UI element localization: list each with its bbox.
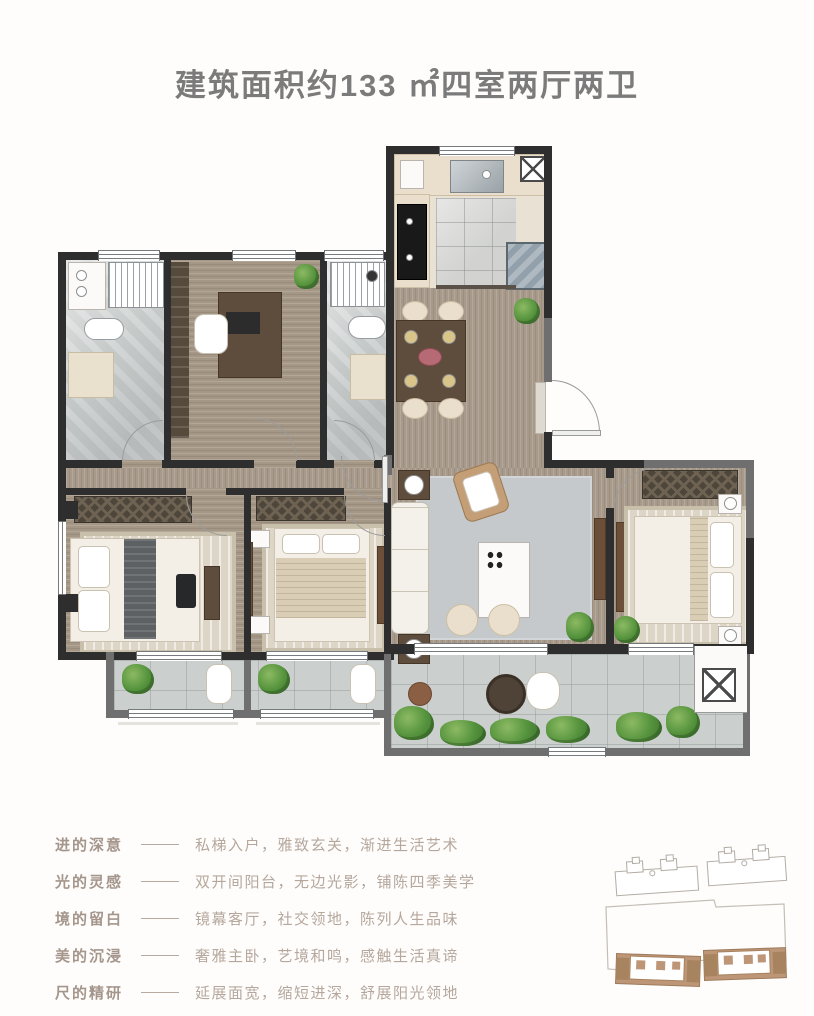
bath2-drain bbox=[366, 270, 378, 282]
window bbox=[136, 651, 222, 661]
plant bbox=[614, 616, 640, 643]
balcony-plant bbox=[122, 664, 154, 694]
bath2-toilet bbox=[348, 316, 386, 339]
sink-faucet bbox=[482, 170, 491, 179]
door-gap bbox=[254, 460, 296, 468]
bedroom1-pillow bbox=[78, 590, 110, 632]
window-sill bbox=[118, 722, 238, 725]
entry-shoe-cabinet bbox=[535, 382, 546, 434]
feature-label: 美的沉浸 bbox=[55, 945, 133, 966]
bedroom1-throw bbox=[176, 574, 196, 608]
kitchen-window bbox=[439, 146, 515, 156]
window bbox=[324, 250, 384, 261]
bedroom1-pillow bbox=[78, 546, 110, 588]
terrace-pot bbox=[408, 682, 432, 706]
living-media-panel bbox=[594, 518, 606, 600]
feature-row: 尺的精研 延展面宽，缩短进深，舒展阳光领地 bbox=[55, 974, 565, 1011]
bedroom1-window bbox=[58, 521, 66, 595]
study-monitor bbox=[226, 312, 260, 334]
feature-row: 境的留白 镜幕客厅，社交领地，陈列人生品味 bbox=[55, 900, 565, 937]
balcony-plant bbox=[258, 664, 290, 694]
terrace-table bbox=[486, 674, 526, 714]
door-gap bbox=[122, 460, 162, 468]
dash-divider bbox=[141, 844, 179, 845]
site-building-highlighted bbox=[703, 948, 786, 981]
feature-row: 进的深意 私梯入户，雅致玄关，渐进生活艺术 bbox=[55, 826, 565, 863]
dining-plate bbox=[404, 330, 418, 344]
window bbox=[232, 250, 296, 261]
refrigerator bbox=[506, 242, 548, 290]
kitchen-threshold bbox=[436, 285, 516, 289]
terrace-plant bbox=[490, 718, 540, 744]
terrace-plant bbox=[440, 720, 486, 746]
feature-label: 尺的精研 bbox=[55, 982, 133, 1003]
master-pillow bbox=[710, 572, 734, 618]
nightstand-lamp bbox=[724, 497, 737, 510]
bedroom2-pillow bbox=[282, 534, 320, 554]
entry-door-arc bbox=[552, 380, 600, 433]
plant bbox=[294, 264, 319, 289]
dining-plate bbox=[404, 374, 418, 388]
coffee-table-decor bbox=[486, 550, 504, 570]
study-chair bbox=[194, 314, 228, 354]
site-plan-svg bbox=[598, 843, 794, 1005]
bath2-shower bbox=[330, 262, 385, 307]
terrace-wall bbox=[384, 654, 391, 756]
terrace-chair bbox=[526, 672, 560, 710]
wall-segment bbox=[251, 488, 344, 495]
feature-text: 奢雅主卧，艺境和鸣，感触生活真谛 bbox=[195, 945, 459, 966]
dining-chair bbox=[438, 398, 464, 419]
window bbox=[98, 250, 160, 261]
wall-segment bbox=[746, 538, 754, 652]
feature-row: 美的沉浸 奢雅主卧，艺境和鸣，感触生活真谛 bbox=[55, 937, 565, 974]
bath1-vanity bbox=[68, 352, 114, 398]
wall-segment bbox=[386, 146, 394, 260]
site-building-highlighted bbox=[616, 954, 701, 987]
balcony-seat bbox=[350, 664, 376, 704]
terrace-plant bbox=[616, 712, 662, 742]
stove-burner bbox=[406, 254, 413, 261]
bedroom2-pillow bbox=[322, 534, 360, 554]
stove-burner bbox=[406, 218, 413, 225]
sofa bbox=[391, 502, 429, 634]
page: { "title": "建筑面积约133 ㎡四室两厅两卫", "features… bbox=[0, 0, 814, 1016]
bath1-faucet bbox=[76, 286, 87, 297]
dining-chair bbox=[438, 301, 464, 322]
wall-segment bbox=[244, 488, 251, 652]
wall-segment-light bbox=[644, 460, 754, 468]
bedroom2-wardrobe bbox=[256, 496, 346, 521]
feature-text: 双开间阳台，无边光影，铺陈四季美学 bbox=[195, 871, 476, 892]
wall-segment bbox=[606, 468, 614, 478]
site-building-outline bbox=[614, 853, 698, 896]
bath1-shower bbox=[108, 262, 164, 308]
balcony-floor bbox=[114, 660, 388, 710]
plant bbox=[566, 612, 594, 642]
dining-centerpiece bbox=[418, 348, 442, 366]
bedroom2-nightstand bbox=[250, 616, 270, 634]
kitchen-flue-shaft bbox=[520, 156, 546, 182]
window bbox=[266, 651, 368, 661]
bedroom1-wardrobe bbox=[74, 496, 192, 523]
study-closet bbox=[171, 262, 189, 438]
ac-platform bbox=[702, 668, 736, 702]
bedroom2-nightstand bbox=[250, 530, 270, 548]
bath1-faucet bbox=[76, 270, 87, 281]
dash-divider bbox=[141, 992, 179, 993]
wall-segment bbox=[66, 488, 186, 495]
dining-plate bbox=[442, 330, 456, 344]
dining-chair bbox=[402, 398, 428, 419]
bedroom1-bench bbox=[204, 566, 220, 620]
balcony-wall bbox=[106, 652, 114, 718]
dining-plate bbox=[442, 374, 456, 388]
plant bbox=[514, 298, 540, 324]
master-pillow bbox=[710, 522, 734, 568]
terrace-plant bbox=[394, 706, 434, 740]
bath1-bathtub bbox=[84, 318, 124, 340]
bay-window-box bbox=[66, 501, 78, 519]
wall-segment-light bbox=[746, 464, 754, 540]
wall-segment bbox=[386, 252, 394, 468]
feature-label: 进的深意 bbox=[55, 834, 133, 855]
side-table-plate bbox=[404, 475, 424, 495]
floor-plan bbox=[58, 146, 758, 766]
wall-segment bbox=[606, 508, 614, 648]
feature-text: 私梯入户，雅致玄关，渐进生活艺术 bbox=[195, 834, 459, 855]
wall-segment bbox=[58, 252, 66, 468]
wall-segment bbox=[384, 488, 391, 652]
balcony-window bbox=[260, 709, 374, 719]
wall-segment bbox=[320, 260, 327, 460]
stove bbox=[397, 204, 427, 280]
terrace-opening bbox=[548, 747, 606, 757]
pouf-stool bbox=[446, 604, 478, 636]
balcony-divider-wall bbox=[244, 660, 251, 710]
entry-door-leaf bbox=[552, 430, 601, 436]
kitchen-sink bbox=[450, 160, 504, 193]
page-title: 建筑面积约133 ㎡四室两厅两卫 bbox=[0, 60, 814, 105]
feature-label: 光的灵感 bbox=[55, 871, 133, 892]
bedroom1-blanket-runner bbox=[124, 539, 156, 639]
feature-list: 进的深意 私梯入户，雅致玄关，渐进生活艺术 光的灵感 双开间阳台，无边光影，铺陈… bbox=[55, 826, 565, 1011]
pouf-stool bbox=[488, 604, 520, 636]
feature-label: 境的留白 bbox=[55, 908, 133, 929]
kitchen-cabinet bbox=[400, 160, 424, 189]
window-sill bbox=[256, 722, 380, 725]
site-plan bbox=[598, 843, 794, 1005]
wall-segment-light bbox=[544, 318, 552, 382]
living-slider-window bbox=[414, 643, 548, 655]
feature-text: 延展面宽，缩短进深，舒展阳光领地 bbox=[195, 982, 459, 1003]
wall-segment bbox=[544, 146, 552, 318]
site-building-outline bbox=[706, 843, 786, 885]
dash-divider bbox=[141, 955, 179, 956]
wall-segment bbox=[164, 260, 171, 460]
dash-divider bbox=[141, 918, 179, 919]
balcony-window bbox=[128, 709, 234, 719]
nightstand-lamp bbox=[724, 629, 737, 642]
feature-text: 镜幕客厅，社交领地，陈列人生品味 bbox=[195, 908, 459, 929]
balcony-seat bbox=[206, 664, 232, 704]
hall-door-leaf bbox=[382, 456, 388, 503]
feature-row: 光的灵感 双开间阳台，无边光影，铺陈四季美学 bbox=[55, 863, 565, 900]
master-slider-window bbox=[628, 643, 694, 655]
kitchen-island-tile bbox=[436, 198, 516, 286]
terrace-plant bbox=[546, 716, 590, 743]
wall-segment bbox=[544, 460, 648, 468]
bath1-basin bbox=[68, 262, 106, 310]
bath2-vanity bbox=[350, 354, 386, 400]
dining-chair bbox=[402, 301, 428, 322]
bedroom2-blanket bbox=[276, 558, 366, 618]
master-blanket bbox=[690, 517, 708, 621]
bay-window-box bbox=[66, 594, 78, 612]
dash-divider bbox=[141, 881, 179, 882]
